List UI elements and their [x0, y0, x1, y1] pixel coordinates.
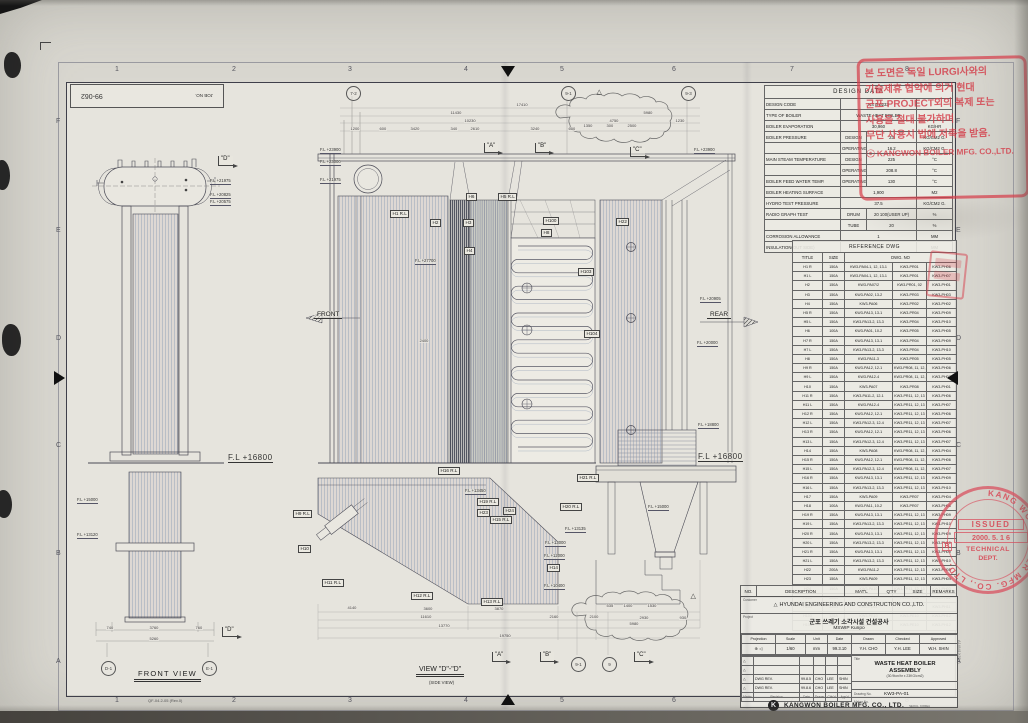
- floor-level-label: F.L +13450: [465, 489, 486, 495]
- dimension-label: 11430: [450, 111, 462, 115]
- form-doc-code: QF-04.2-05 (Rev.0): [148, 698, 182, 703]
- revision-row: △DWG REV.99.8.5CHOLEESHIN: [742, 675, 852, 684]
- reference-dwg-row: H21 R150AKW3-PA13, 13-1KW3-PR11, 12, 13K…: [793, 547, 957, 556]
- floor-level-label: F.L +10400: [544, 584, 565, 590]
- reference-dwg-row: H19 L150AKW3-PA13-2, 13-3KW3-PR11, 12, 1…: [793, 520, 957, 529]
- dimension-label: 1350: [583, 124, 593, 128]
- grid-reference-letter: E: [56, 227, 61, 234]
- grid-reference-letter: D: [56, 335, 61, 342]
- nozzle-tag-label: H103: [578, 268, 594, 276]
- nozzle-tag-label: H14: [547, 564, 560, 572]
- reference-dwg-row: H9 L150AKW3-PA12-4KW3-PR08, 11, 12, 13KW…: [793, 373, 957, 382]
- grid-reference-letter: F: [56, 118, 60, 125]
- drawing-title-spec: (30.9ton/hr x 23KG/cm2): [852, 674, 958, 678]
- revision-table: △△△DWG REV.99.8.5CHOLEESHIN△DWG REV.99.8…: [741, 656, 852, 702]
- floor-level-label: F.L +27700: [415, 259, 436, 265]
- grid-reference-number: 5: [560, 697, 564, 704]
- approval-header-table: ProjectionScaleUnitDateDrawnCheckedAppro…: [741, 634, 958, 655]
- reference-dwg-row: H18100AKW3-PA11, 10-2KW3-PR07KW3-PH08: [793, 501, 957, 510]
- grid-reference-number: 2: [232, 66, 236, 73]
- reference-dwg-row: H17150AKW3-PA09KW3-PR07KW3-PH04: [793, 492, 957, 501]
- paper-fold-crease: [500, 62, 510, 709]
- reference-dwg-row: H13 L150AKW3-PA12-3, 12-4KW3-PR11, 12, 1…: [793, 437, 957, 446]
- floor-level-label: F.L +13135: [565, 527, 586, 533]
- nozzle-tag-label: H22: [616, 218, 629, 226]
- dimension-label: △: [690, 595, 696, 599]
- revision-and-title-row: △△△DWG REV.99.8.5CHOLEESHIN△DWG REV.99.8…: [741, 655, 957, 697]
- dimension-label: 1530: [647, 604, 657, 608]
- dimension-label: 13770: [438, 624, 450, 628]
- nozzle-tag-label: H9 R.L: [293, 510, 312, 518]
- floor-level-label: F.L +13120: [77, 533, 98, 539]
- dimension-label: 2160: [549, 615, 559, 619]
- grid-reference-number: 3: [348, 697, 352, 704]
- center-registration-arrow-icon: [54, 371, 65, 385]
- reference-dwg-table: REFERENCE DWGTITLESIZEDWG. NOH1 R150AKW3…: [792, 240, 957, 631]
- nozzle-tag-label: H8: [541, 229, 552, 237]
- dimension-label: 3240: [530, 127, 540, 131]
- reference-dwg-row: H15 L150AKW3-PA12-3, 12-4KW3-PR08, 11, 1…: [793, 465, 957, 474]
- paper-fold-crease: [742, 62, 752, 709]
- dimension-label: 300: [606, 124, 614, 128]
- stamp-company-line: ⓒ KANGWON BOILER MFG. CO.,LTD.: [866, 144, 1020, 159]
- floor-level-label: F.L +15000: [77, 498, 98, 504]
- side-view-title: VIEW "D"-"D": [416, 666, 464, 677]
- dimension-label: 340: [450, 127, 458, 131]
- center-registration-arrow-icon: [501, 694, 515, 705]
- dimension-label: 4140: [347, 606, 357, 610]
- reference-dwg-row: H22200AKW3-PA11-2KW3-PR11, 12, 13KW3-PH0…: [793, 566, 957, 575]
- dimension-label: 2610: [470, 127, 480, 131]
- revision-row: △: [742, 657, 852, 666]
- approval-values-row: ⊕ ◁1/60mm99.3.10Y.H. CHOY.H. LEEW.H. SHI…: [742, 644, 958, 655]
- floor-level-label: F.L +23900: [320, 148, 341, 154]
- dimension-label: 1400: [623, 604, 633, 608]
- section-marker: "D": [218, 156, 233, 166]
- dimension-label: 2400: [419, 339, 429, 343]
- grid-reference-number: 3: [348, 66, 352, 73]
- reference-dwg-row: H20 L150AKW3-PA13-2, 13-3KW3-PR11, 12, 1…: [793, 538, 957, 547]
- dimension-label: 600: [568, 127, 576, 131]
- nozzle-tag-label: H6: [466, 193, 477, 201]
- corner-crop-mark: [40, 42, 51, 50]
- nozzle-tag-label: H16 R.L: [438, 467, 460, 475]
- dimension-label: 10230: [464, 119, 476, 123]
- dimension-label: 11610: [420, 615, 432, 619]
- paper-edge-shadow: [1014, 0, 1028, 723]
- grid-reference-letter: A: [56, 658, 61, 665]
- hyundai-triangle-logo: △: [774, 602, 778, 608]
- reference-dwg-row: H6100AKW3-PA01, 10-2KW3-PR05KW3-PH05: [793, 327, 957, 336]
- front-view-title: FRONT VIEW: [134, 669, 201, 682]
- nozzle-tag-label: H2: [430, 219, 441, 227]
- floor-level-label: F.L +20905: [700, 297, 721, 303]
- dimension-label: 740: [106, 626, 114, 630]
- section-marker: "B": [535, 143, 549, 153]
- floor-level-label: F.L +12000: [544, 554, 565, 560]
- reference-dwg-row: H16 R150AKW3-PA13, 13-1KW3-PR11, 12, 13K…: [793, 474, 957, 483]
- reference-dwg-row: H16 L150AKW3-PA13-2, 13-3KW3-PR11, 12, 1…: [793, 483, 957, 492]
- reference-dwg-row: H8150AKW3-PA11-3KW3-PR05KW3-PH05: [793, 354, 957, 363]
- dimension-label: 2500: [627, 124, 637, 128]
- nozzle-tag-label: H20 R.L: [560, 503, 582, 511]
- revision-row: △DWG REV.99.8.6CHOLEESHIN: [742, 684, 852, 693]
- nozzle-tag-label: H104: [584, 330, 600, 338]
- drawing-title: WASTE HEAT BOILERASSEMBLY: [852, 661, 958, 674]
- section-marker: "A": [484, 143, 498, 153]
- floor-level-label: F.L +20000: [697, 341, 718, 347]
- reference-dwg-row: H5 L150AKW3-PA13-2, 13-3KW3-PR04KW3-PH10: [793, 318, 957, 327]
- direction-label: FRONT: [314, 311, 342, 319]
- dimension-label: △: [596, 91, 602, 95]
- paper-edge-shadow: [0, 0, 1028, 6]
- reference-dwg-row: H15 R150AKW3-PA12, 12-1KW3-PR08, 11, 12,…: [793, 455, 957, 464]
- floor-level-label: F.L +13000: [545, 541, 566, 547]
- scanned-drawing-sheet: FRONT VIEW VIEW "D"-"D" (SIDE VIEW) QF-0…: [0, 0, 1028, 723]
- column-grid-bubble: 7-2: [346, 86, 361, 101]
- reference-dwg-row: H9 R150AKW3-PA12, 12-1KW3-PR08, 11, 12, …: [793, 364, 957, 373]
- column-grid-bubble: 9-3: [681, 86, 696, 101]
- nozzle-tag-label: H12 R.L: [411, 592, 433, 600]
- floor-level-label: F.L +20825: [210, 193, 231, 199]
- grid-reference-number: 7: [790, 66, 794, 73]
- dimension-label: 5260: [149, 637, 159, 641]
- direction-label: REAR: [707, 311, 731, 319]
- reference-dwg-row: H13 R150AKW3-PA12, 12-1KW3-PR11, 12, 13K…: [793, 428, 957, 437]
- small-red-stamp: [926, 250, 969, 300]
- nozzle-tag-label: H23: [477, 509, 490, 517]
- reference-dwg-row: H14150AKW3-PA08KW3-PR08, 11, 12, 13KW3-P…: [793, 446, 957, 455]
- dimension-label: 2100: [589, 615, 599, 619]
- binding-mark: [2, 324, 21, 356]
- stamp-mark: [935, 258, 962, 269]
- nozzle-tag-label: H21 R.L: [577, 474, 599, 482]
- section-marker: "D": [222, 627, 237, 637]
- dimension-label: 3600: [423, 607, 433, 611]
- grid-reference-number: 6: [672, 697, 676, 704]
- dimension-label: 5980: [643, 111, 653, 115]
- paper-wrinkle: [845, 195, 1028, 241]
- reference-dwg-row: H21 L150AKW3-PA13-2, 13-3KW3-PR11, 12, 1…: [793, 557, 957, 566]
- nozzle-tag-label: H19 R.L: [477, 498, 499, 506]
- reference-dwg-row: H23150AKW3-PA09KW3-PR11, 12, 13KW3-PH04: [793, 575, 957, 584]
- dimension-label: 3420: [410, 127, 420, 131]
- grid-reference-number: 4: [464, 66, 468, 73]
- drawing-title-panel: Title WASTE HEAT BOILERASSEMBLY (30.9ton…: [851, 656, 958, 697]
- floor-level-label: F.L +21975: [320, 178, 341, 184]
- reference-dwg-row: H5 R150AKW3-PA13, 13-1KW3-PR04KW3-PH09: [793, 308, 957, 317]
- dimension-label: 600: [379, 127, 387, 131]
- center-registration-arrow-icon: [501, 66, 515, 77]
- floor-level-label: F.L +23000: [320, 160, 341, 166]
- job-no-value: 99-062: [81, 93, 103, 100]
- column-grid-bubble: 9-1: [561, 86, 576, 101]
- column-grid-bubble: 9: [602, 657, 617, 672]
- customer-row: Customer △HYUNDAI ENGINEERING AND CONSTR…: [741, 597, 957, 614]
- reference-dwg-row: H11 R150AKW3-PA11-2, 12-1KW3-PR11, 12, 1…: [793, 391, 957, 400]
- dimension-label: 3760: [149, 626, 159, 630]
- floor-level-label: F.L +16800: [698, 452, 743, 462]
- grid-reference-number: 1: [115, 697, 119, 704]
- reference-dwg-row: H19 R150AKW3-PA13, 13-1KW3-PR11, 12, 13K…: [793, 511, 957, 520]
- floor-level-label: F.L +16800: [228, 453, 273, 463]
- reference-dwg-row: H11 L150AKW3-PA12-4KW3-PR11, 12, 13KW3-P…: [793, 400, 957, 409]
- job-no-label: JOB NO.: [195, 94, 213, 99]
- revision-row: △: [742, 666, 852, 675]
- dimension-label: 1230: [675, 119, 685, 123]
- section-marker: "C": [630, 147, 645, 157]
- stamp-mark: [934, 271, 961, 282]
- grid-reference-number: 1: [115, 66, 119, 73]
- nozzle-tag-label: H1 R.L: [390, 210, 409, 218]
- dimension-label: 760: [195, 626, 203, 630]
- floor-level-label: F.L +20575: [210, 200, 231, 206]
- nozzle-tag-label: H100: [543, 217, 559, 225]
- dimension-label: 535: [606, 604, 614, 608]
- customer-name: △HYUNDAI ENGINEERING AND CONSTRUCTION CO…: [741, 602, 957, 608]
- copyright-notice-stamp: 본 도면은 독일 LURGI사와의기술제휴 협약에 의거 현대군포 PROJEC…: [857, 55, 1028, 201]
- dimension-label: 930: [679, 616, 687, 620]
- nozzle-tag-label: H4: [464, 247, 475, 255]
- section-marker: "C": [634, 652, 649, 662]
- column-grid-bubble: D-1: [101, 661, 116, 676]
- grid-reference-number: 2: [232, 697, 236, 704]
- dimension-label: 1200: [350, 127, 360, 131]
- dimension-label: 5980: [629, 622, 639, 626]
- binding-mark: [4, 52, 21, 78]
- nozzle-tag-label: H3: [463, 219, 474, 227]
- center-registration-arrow-icon: [947, 371, 958, 385]
- floor-level-label: F.L +18800: [698, 423, 719, 429]
- dimension-label: 17410: [516, 103, 528, 107]
- column-grid-bubble: 9-1: [571, 657, 586, 672]
- job-no-box: JOB NO. 99-062: [70, 84, 224, 108]
- reference-dwg-row: H7 L150AKW3-PA13-2, 13-3KW3-PR04KW3-PH10: [793, 345, 957, 354]
- grid-reference-number: 6: [672, 66, 676, 73]
- project-name-english: MSWIP Kunpo: [741, 626, 957, 631]
- floor-level-label: F.L +23900: [694, 148, 715, 154]
- title-block: Customer △HYUNDAI ENGINEERING AND CONSTR…: [740, 596, 958, 708]
- reference-dwg-row: H7 R150AKW3-PA13, 13-1KW3-PR04KW3-PH09: [793, 336, 957, 345]
- reference-dwg-row: H12 L150AKW3-PA12-3, 12-4KW3-PR11, 12, 1…: [793, 419, 957, 428]
- grid-reference-number: 4: [464, 697, 468, 704]
- grid-reference-letter: C: [56, 442, 61, 449]
- reference-dwg-row: H4150AKW3-PA06KW3-PR02KW3-PH02: [793, 299, 957, 308]
- floor-level-label: F.L +15000: [648, 505, 669, 511]
- project-row: Project 군포 쓰레기 소각시설 건설공사 MSWIP Kunpo: [741, 614, 957, 634]
- floor-level-label: F.L +21975: [210, 179, 231, 185]
- column-grid-bubble: E-1: [202, 661, 217, 676]
- grid-reference-number: 5: [560, 66, 564, 73]
- reference-dwg-row: H20 R150AKW3-PA13, 13-1KW3-PR11, 12, 13K…: [793, 529, 957, 538]
- section-marker: "B": [540, 652, 554, 662]
- grid-reference-letter: B: [56, 550, 61, 557]
- scan-background: [0, 711, 1028, 723]
- nozzle-tag-label: H10: [298, 545, 311, 553]
- stamp-text-lines: 본 도면은 독일 LURGI사와의기술제휴 협약에 의거 현대군포 PROJEC…: [865, 63, 1021, 144]
- nozzle-tag-label: H11 R.L: [322, 579, 344, 587]
- stamp-text-line: 무단 사용시 법에 저촉을 받음.: [866, 125, 1020, 144]
- reference-dwg-row: H12 R150AKW3-PA12, 12-1KW3-PR11, 12, 13K…: [793, 410, 957, 419]
- dimension-label: 2930: [639, 616, 649, 620]
- reference-dwg-row: H10150AKW3-PA07KW3-PR08KW3-PH01: [793, 382, 957, 391]
- side-view-subtitle: (SIDE VIEW): [429, 680, 454, 685]
